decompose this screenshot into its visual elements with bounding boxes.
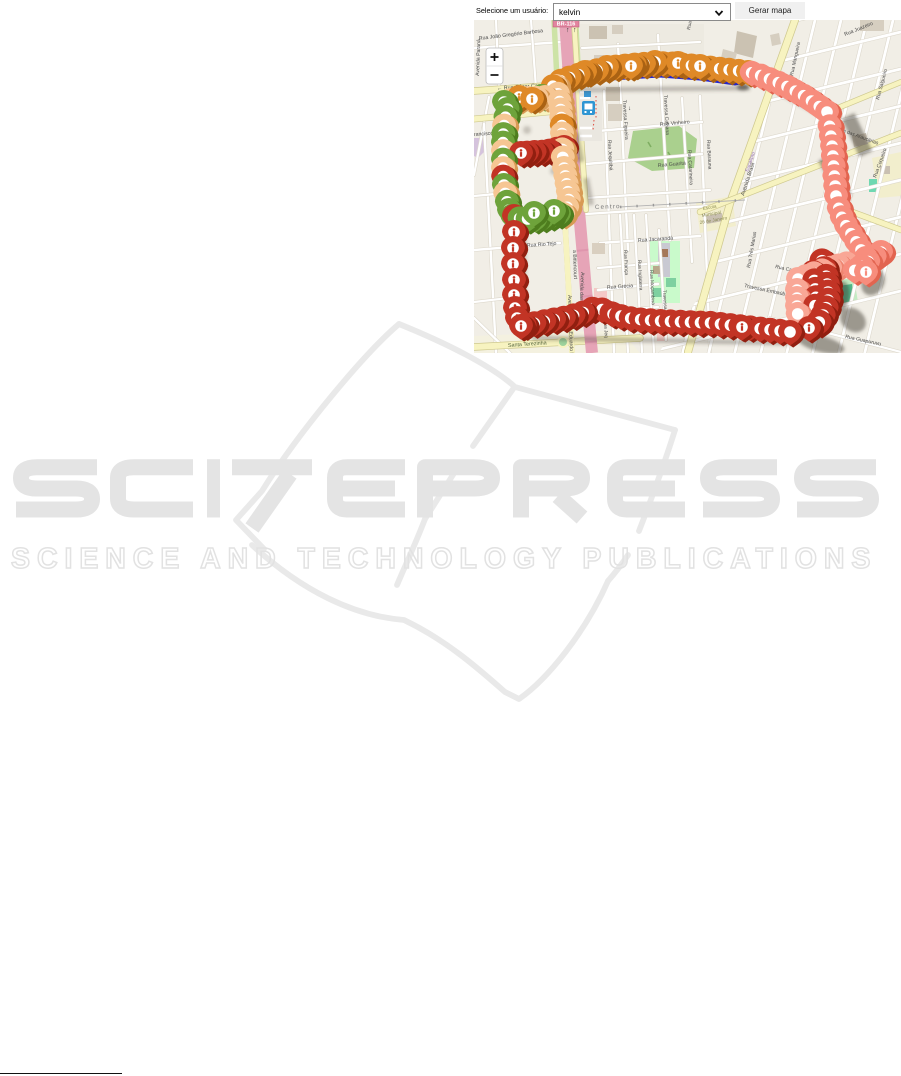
svg-text:Centro: Centro xyxy=(595,203,621,211)
svg-text:↑: ↑ xyxy=(573,27,577,34)
svg-text:BR-116: BR-116 xyxy=(557,22,576,28)
svg-text:↓: ↓ xyxy=(628,106,631,112)
svg-text:a Bittencourt: a Bittencourt xyxy=(571,250,578,280)
svg-text:↑: ↑ xyxy=(566,27,570,34)
svg-text:SCIENCE AND TECHNOLOGY PUBLICA: SCIENCE AND TECHNOLOGY PUBLICATIONS xyxy=(11,543,873,575)
